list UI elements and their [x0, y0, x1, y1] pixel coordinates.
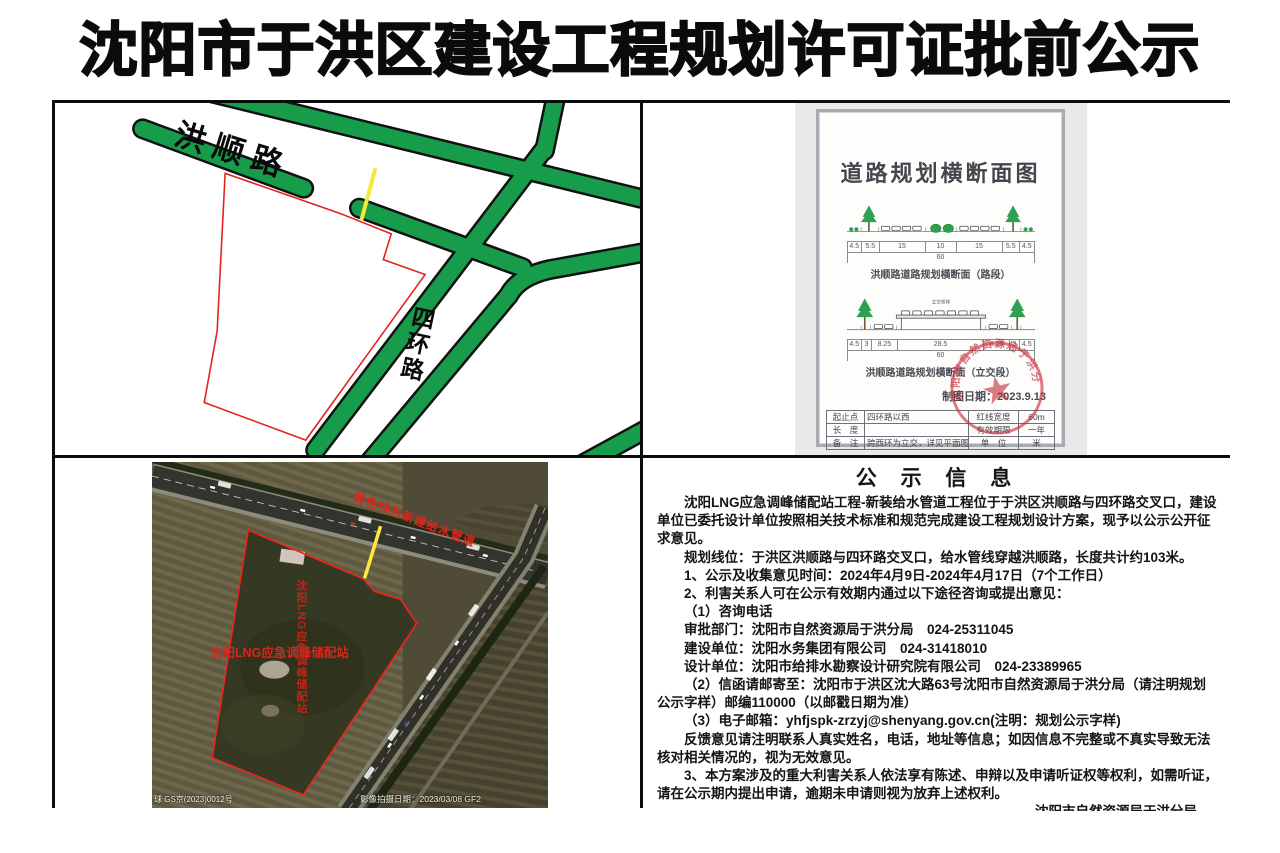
sheet-info-table: 起止点 四环路以西 红线宽度 60m 长 度 有效期限 一年 备 注 跨西环为立… [826, 410, 1055, 450]
notice-paragraph: 反馈意见请注明联系人真实姓名，电话，地址等信息；如因信息不完整或不真实导致无法核… [657, 731, 1219, 767]
sat-attribution-date: 影像拍摄日期：2023/03/08 GF2 [360, 793, 481, 805]
table-row: 备 注 跨西环为立交，详见平面图 单 位 米 [827, 437, 1055, 450]
grid-vertical-divider [640, 103, 643, 805]
cross-section-b-caption: 洪顺路道路规划横断面（立交段） [847, 364, 1035, 379]
sat-site-label: 沈阳LNG应急调峰储配站 [210, 642, 349, 661]
table-row: 起止点 四环路以西 红线宽度 60m [827, 411, 1055, 424]
notice-board-grid: 洪顺路 四环路 黄色线为新建给水管道 沈阳LNG应急调峰储配站 道路规划横断面图 [52, 100, 1230, 808]
satellite-image: 黄色线为新建给水管道 沈阳LNG应急调峰储配站 沈阳LNG应急调峰储配站 球 G… [152, 462, 548, 808]
cross-section-panel: 道路规划横断面图 [643, 103, 1233, 455]
page-title: 沈阳市于洪区建设工程规划许可证批前公示 [0, 8, 1280, 94]
cross-section-b-drawing: 立交桥体 [847, 294, 1035, 334]
cross-section-a-caption: 洪顺路道路规划横断面（路段） [847, 266, 1035, 281]
plan-map-panel: 洪顺路 四环路 黄色线为新建给水管道 沈阳LNG应急调峰储配站 [55, 103, 640, 455]
cross-section-a-dimensions: 4.55.51510155.54.5 [847, 241, 1035, 252]
satellite-panel: 黄色线为新建给水管道 沈阳LNG应急调峰储配站 沈阳LNG应急调峰储配站 球 G… [55, 458, 640, 811]
cross-section-overpass-segment: 立交桥体 [847, 294, 1035, 379]
sheet-title: 道路规划横断面图 [819, 156, 1062, 188]
car-icon [874, 311, 1008, 329]
overpass-deck-label: 立交桥体 [931, 299, 950, 306]
notice-paragraph: （2）信函请邮寄至：沈阳市于洪区沈大路63号沈阳市自然资源局于洪分局（请注明规划… [657, 676, 1219, 712]
cross-section-sheet: 道路规划横断面图 [816, 109, 1065, 447]
notice-signature: 沈阳市自然资源局于洪分局 [657, 803, 1219, 811]
cross-section-b-total: 60 [847, 350, 1035, 361]
notice-paragraph: 审批部门：沈阳市自然资源局于洪分局 024-25311045 [657, 621, 1219, 639]
cross-section-road-segment: 4.55.51510155.54.5 60 洪顺路道路规划横断面（路段） [847, 204, 1035, 281]
notice-body: 公 示 信 息 沈阳LNG应急调峰储配站工程-新装给水管道工程位于于洪区洪顺路与… [643, 458, 1233, 811]
notice-paragraph: 2、利害关系人可在公示有效期内通过以下途径咨询或提出意见： [657, 585, 1219, 603]
cross-section-a-drawing [847, 204, 1035, 236]
notice-paragraph: （3）电子邮箱：yhfjspk-zrzyj@shenyang.gov.cn(注明… [657, 712, 1219, 730]
notice-title: 公 示 信 息 [657, 462, 1219, 492]
drawing-date: 制图日期：2023.9.13 [819, 388, 1046, 404]
sat-attribution-license: 球 GS京(2023)0012号 [154, 794, 233, 805]
notice-paragraph: 建设单位：沈阳水务集团有限公司 024-31418010 [657, 640, 1219, 658]
notice-paragraph: 1、公示及收集意见时间：2024年4月9日-2024年4月17日（7个工作日） [657, 567, 1219, 585]
table-row: 长 度 有效期限 一年 [827, 424, 1055, 437]
notice-panel: 公 示 信 息 沈阳LNG应急调峰储配站工程-新装给水管道工程位于于洪区洪顺路与… [643, 458, 1233, 811]
grid-horizontal-divider [55, 455, 1227, 458]
satellite-drawing [152, 462, 548, 808]
sat-site-label-vertical: 沈阳LNG应急调峰储配站 [293, 580, 309, 714]
notice-paragraph: 规划线位：于洪区洪顺路与四环路交叉口，给水管线穿越洪顺路，长度共计约103米。 [657, 549, 1219, 567]
overpass-deck [896, 315, 985, 330]
notice-paragraph: 设计单位：沈阳市给排水勘察设计研究院有限公司 024-23389965 [657, 658, 1219, 676]
notice-paragraph: （1）咨询电话 [657, 603, 1219, 621]
cross-section-a-total: 60 [847, 252, 1035, 263]
notice-paragraph: 3、本方案涉及的重大利害关系人依法享有陈述、申辩以及申请听证权等权利，如需听证，… [657, 767, 1219, 803]
road-corner [546, 416, 640, 455]
notice-paragraph: 沈阳LNG应急调峰储配站工程-新装给水管道工程位于于洪区洪顺路与四环路交叉口，建… [657, 494, 1219, 549]
cross-section-b-dimensions: 4.538.2528.58.2534.5 [847, 339, 1035, 350]
plan-map-drawing [55, 103, 640, 455]
